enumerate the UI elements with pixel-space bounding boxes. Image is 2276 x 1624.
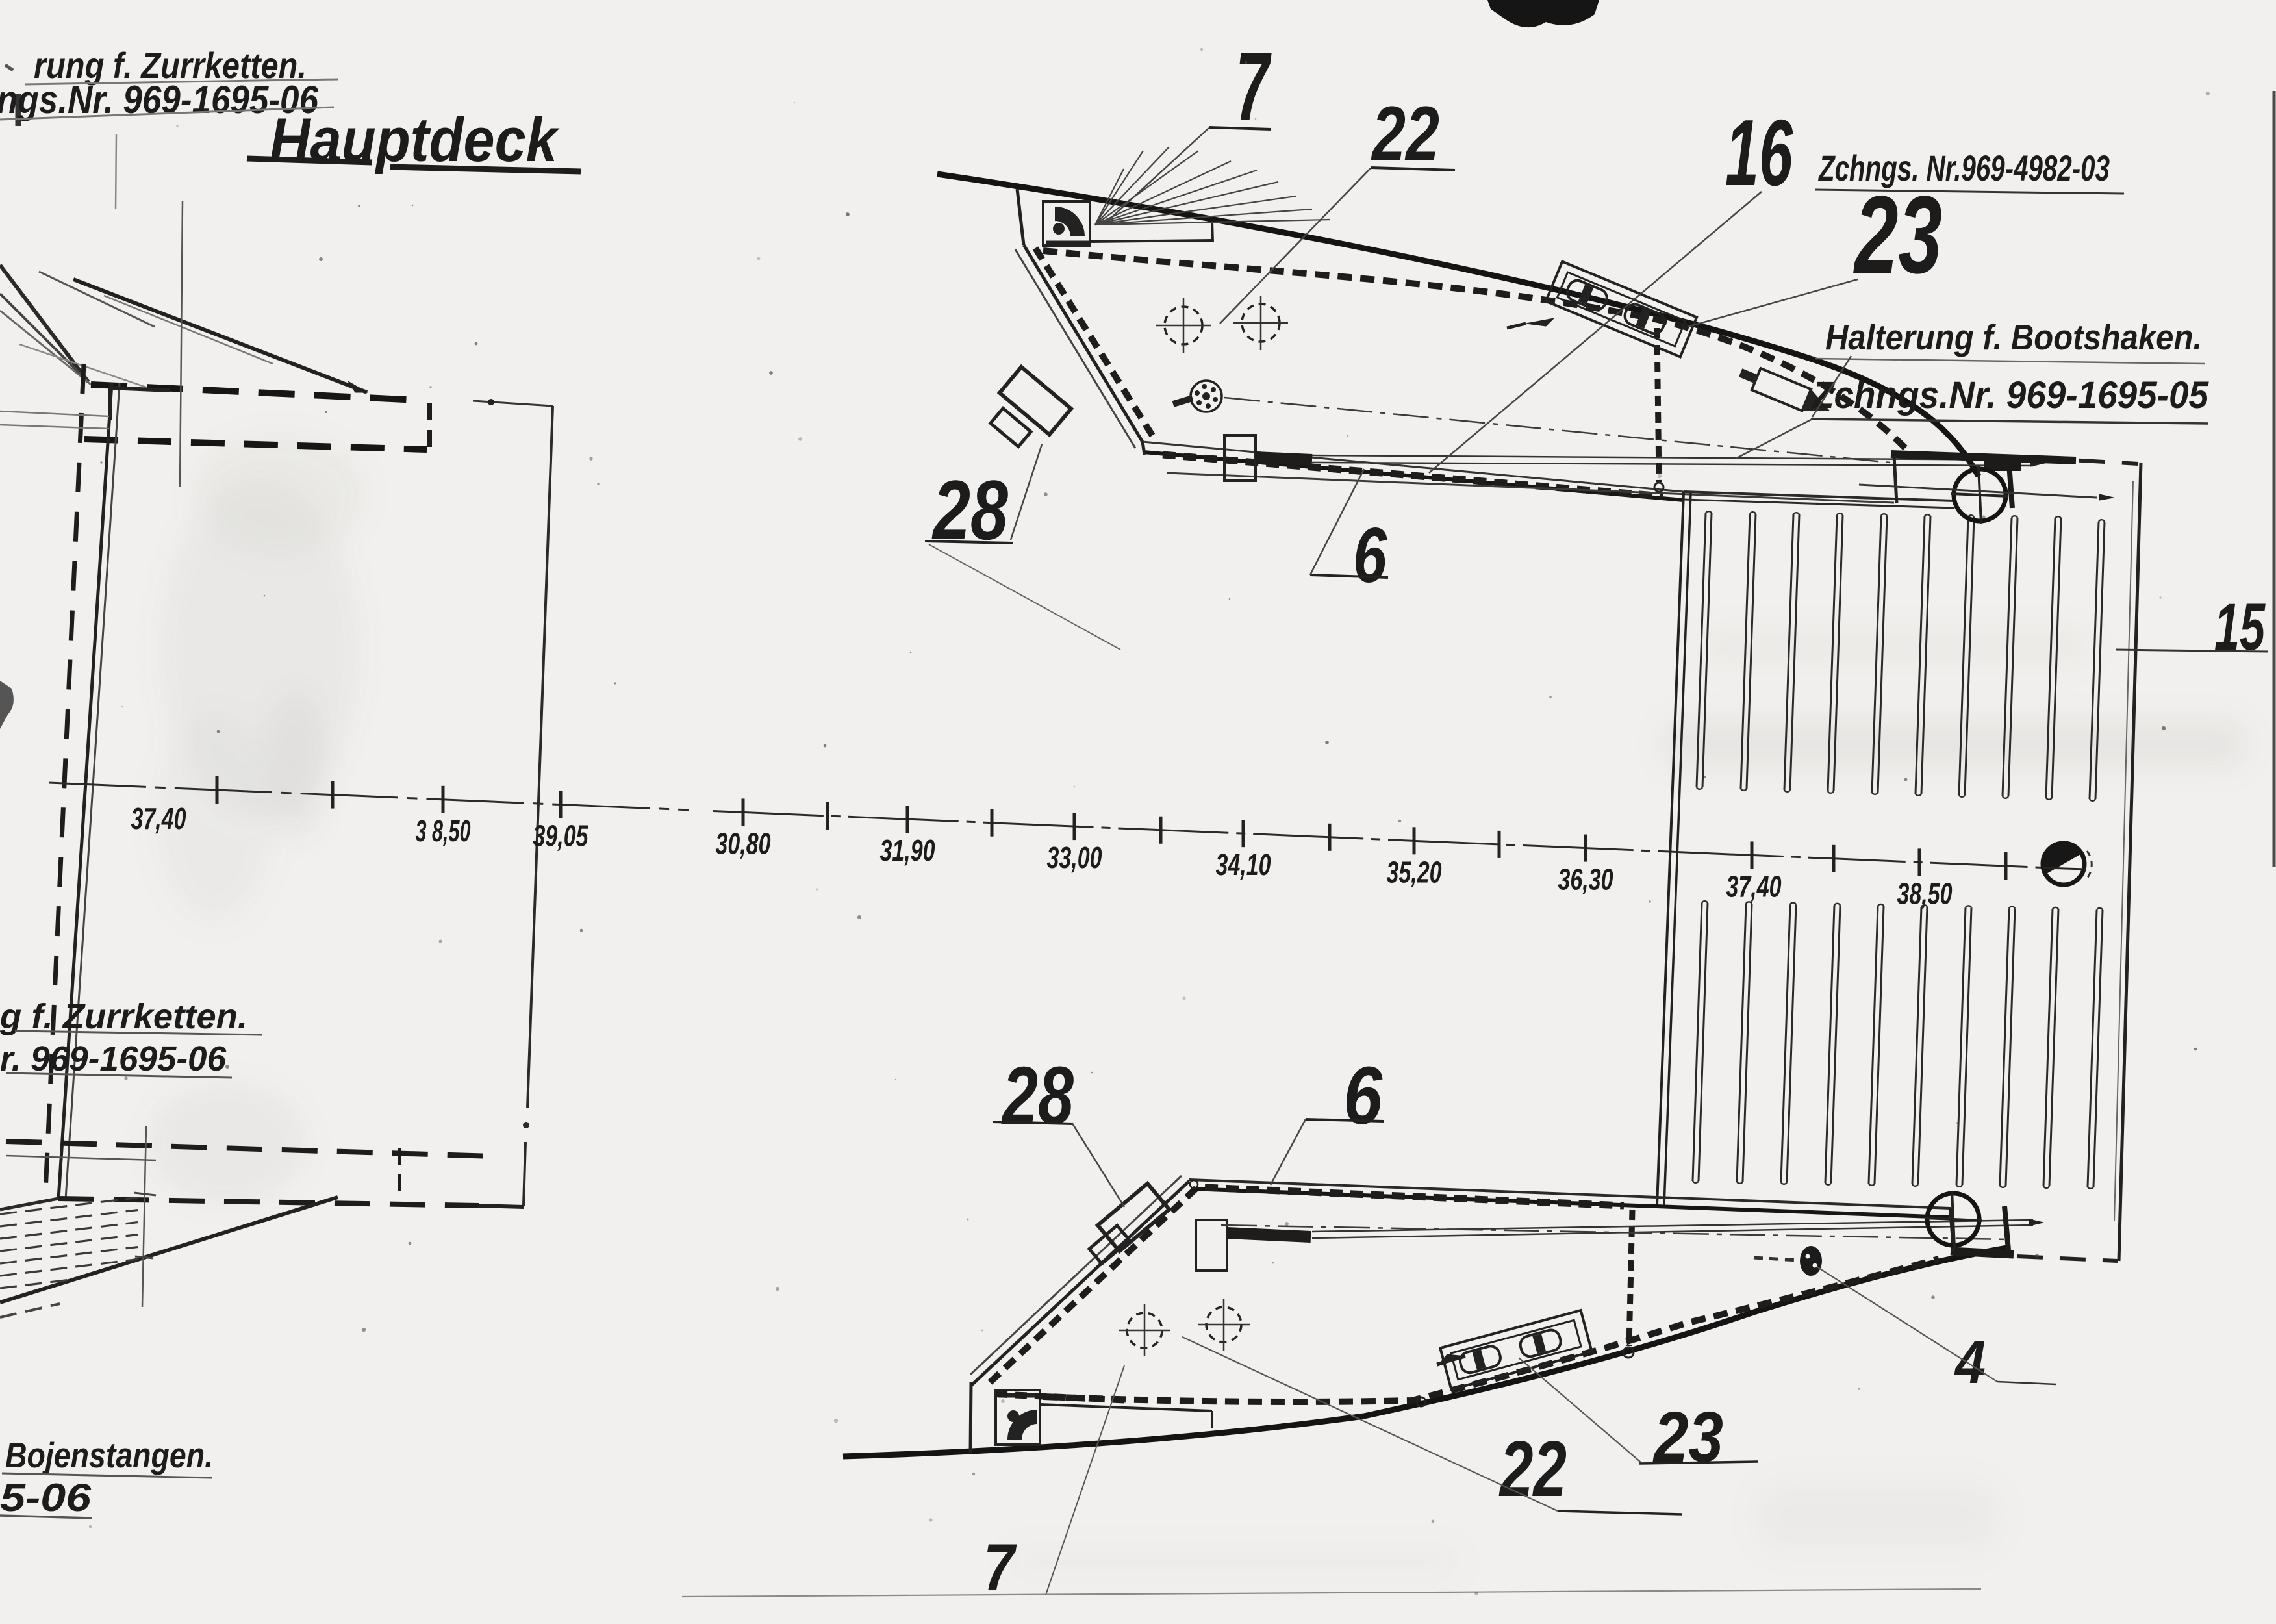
svg-text:23: 23	[1652, 1397, 1723, 1477]
svg-text:r. 969-1695-06: r. 969-1695-06	[0, 1039, 227, 1078]
svg-text:5-06: 5-06	[0, 1476, 92, 1519]
svg-text:7: 7	[1235, 32, 1272, 141]
svg-text:g f. Zurrketten.: g f. Zurrketten.	[0, 997, 247, 1036]
svg-text:36,30: 36,30	[1558, 863, 1613, 896]
svg-text:15: 15	[2214, 590, 2266, 664]
svg-text:16: 16	[1725, 100, 1793, 205]
svg-text:Zchngs.Nr. 969-1695-05: Zchngs.Nr. 969-1695-05	[1811, 374, 2209, 416]
svg-text:28: 28	[1001, 1050, 1074, 1141]
svg-text:6: 6	[1353, 512, 1387, 599]
svg-text:22: 22	[1371, 90, 1439, 177]
svg-text:Halterung f. Bootshaken.: Halterung f. Bootshaken.	[1825, 317, 2202, 357]
svg-text:23: 23	[1853, 173, 1942, 297]
svg-text:34,10: 34,10	[1216, 848, 1271, 882]
svg-text:39,05: 39,05	[533, 818, 589, 852]
svg-text:35,20: 35,20	[1387, 855, 1442, 889]
svg-text:30,80: 30,80	[716, 826, 771, 860]
svg-text:37,40: 37,40	[1726, 870, 1782, 904]
svg-text:4: 4	[1954, 1328, 1986, 1396]
svg-text:33,00: 33,00	[1047, 841, 1102, 874]
svg-text:6: 6	[1343, 1050, 1383, 1141]
svg-text:7: 7	[983, 1530, 1017, 1605]
svg-text:31,90: 31,90	[880, 833, 935, 867]
svg-text:3 8,50: 3 8,50	[416, 814, 471, 848]
svg-text:Hauptdeck: Hauptdeck	[270, 105, 560, 175]
svg-text:37,40: 37,40	[131, 802, 186, 835]
svg-text:Bojenstangen.: Bojenstangen.	[5, 1435, 213, 1475]
